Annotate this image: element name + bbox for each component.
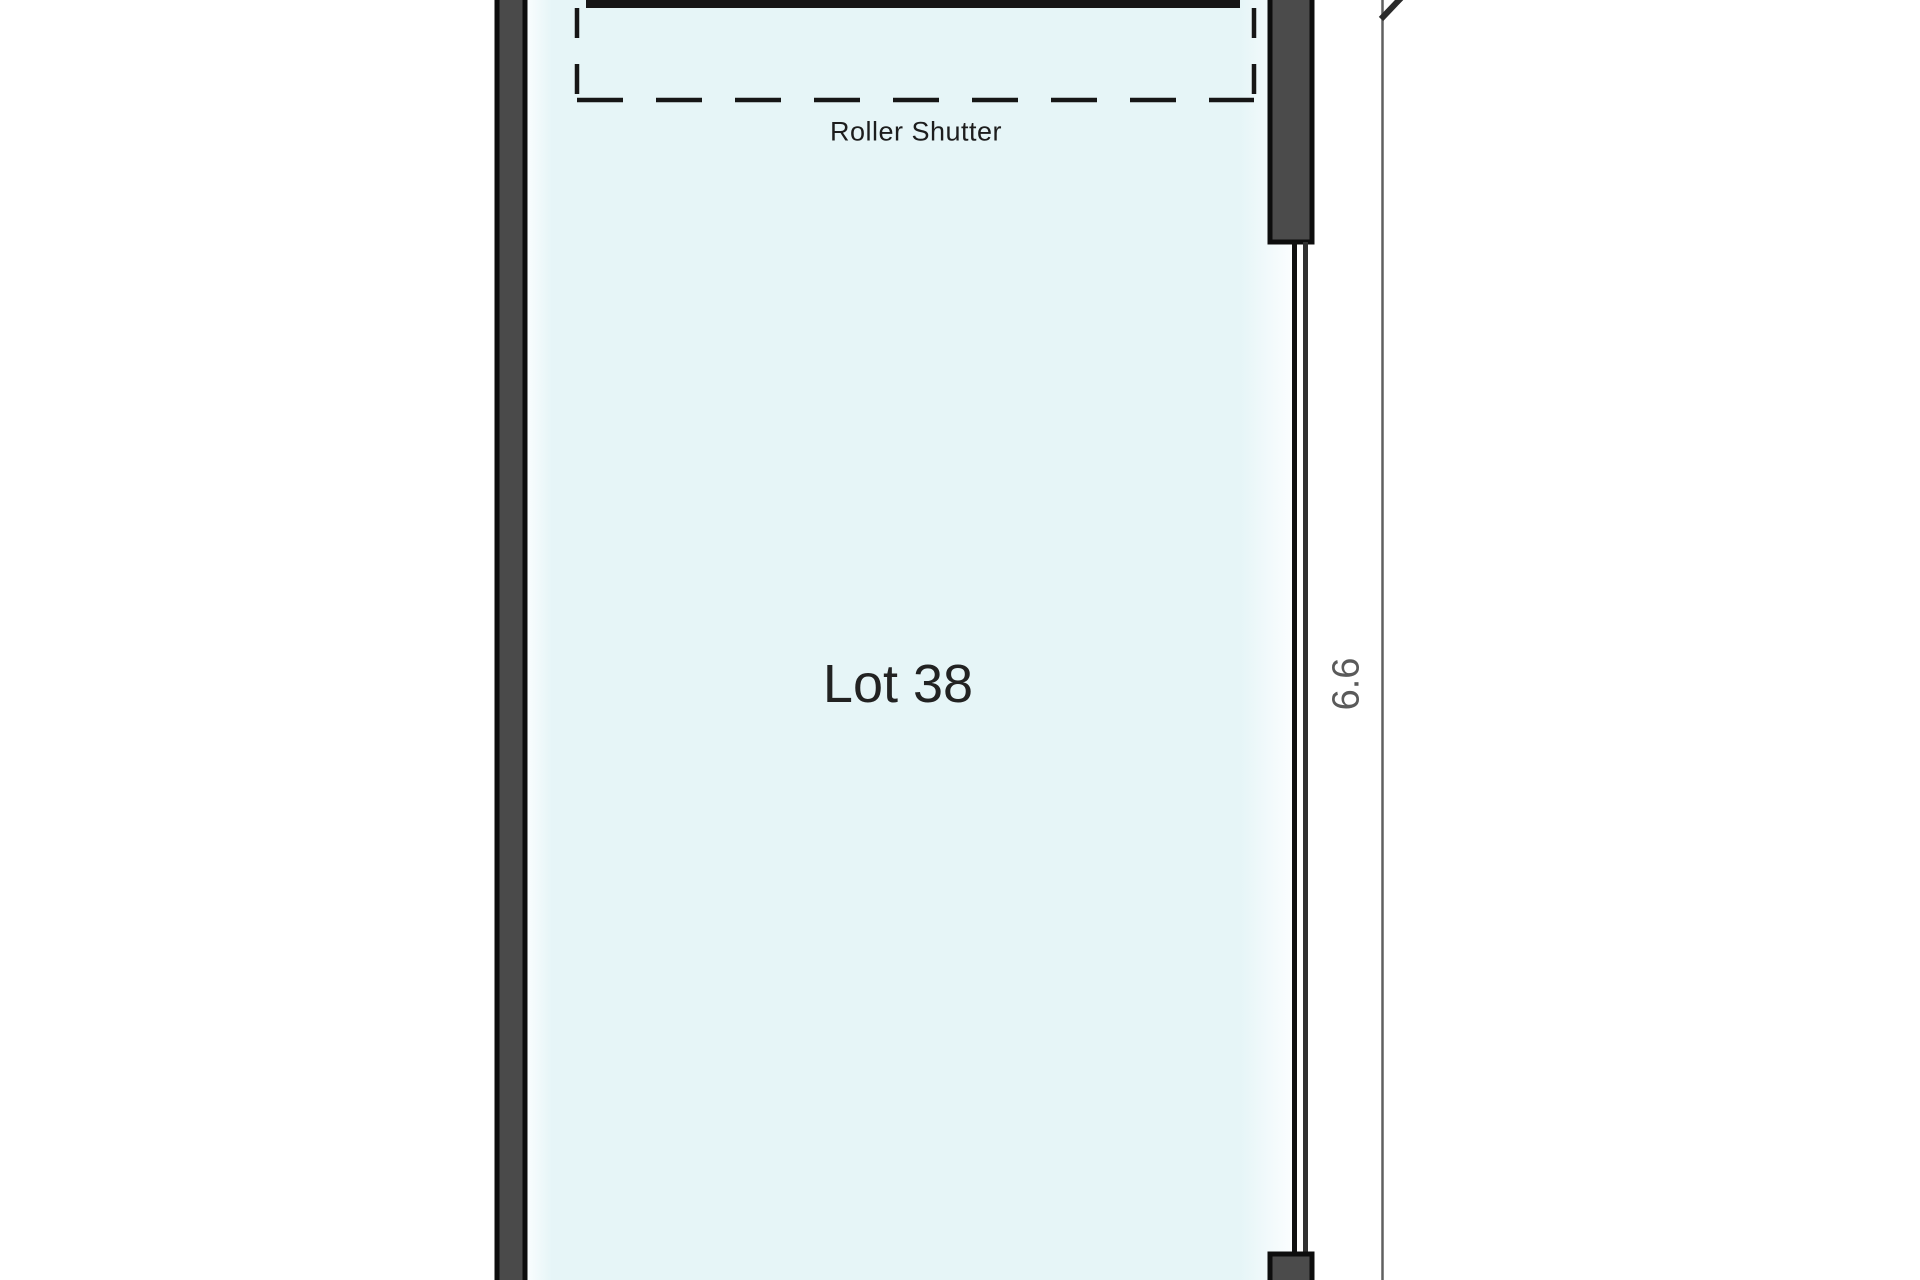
right-wall-pier-bottom: [1270, 1254, 1312, 1280]
right-wall-pier-top: [1270, 0, 1312, 242]
roller-shutter-label: Roller Shutter: [830, 117, 1002, 148]
floor-plan-drawing: [0, 0, 1920, 1280]
shutter-housing-bar: [586, 0, 1240, 8]
floor-plan: Roller Shutter Lot 38 6.6: [0, 0, 1920, 1280]
left-wall: [497, 0, 525, 1280]
window-glazing-line: [1295, 242, 1306, 1255]
dimension-value-label: 6.6: [1326, 658, 1369, 711]
dimension-arrow-tick-icon: [1381, 0, 1401, 19]
room-interior: [525, 0, 1294, 1280]
lot-number-label: Lot 38: [823, 653, 973, 715]
